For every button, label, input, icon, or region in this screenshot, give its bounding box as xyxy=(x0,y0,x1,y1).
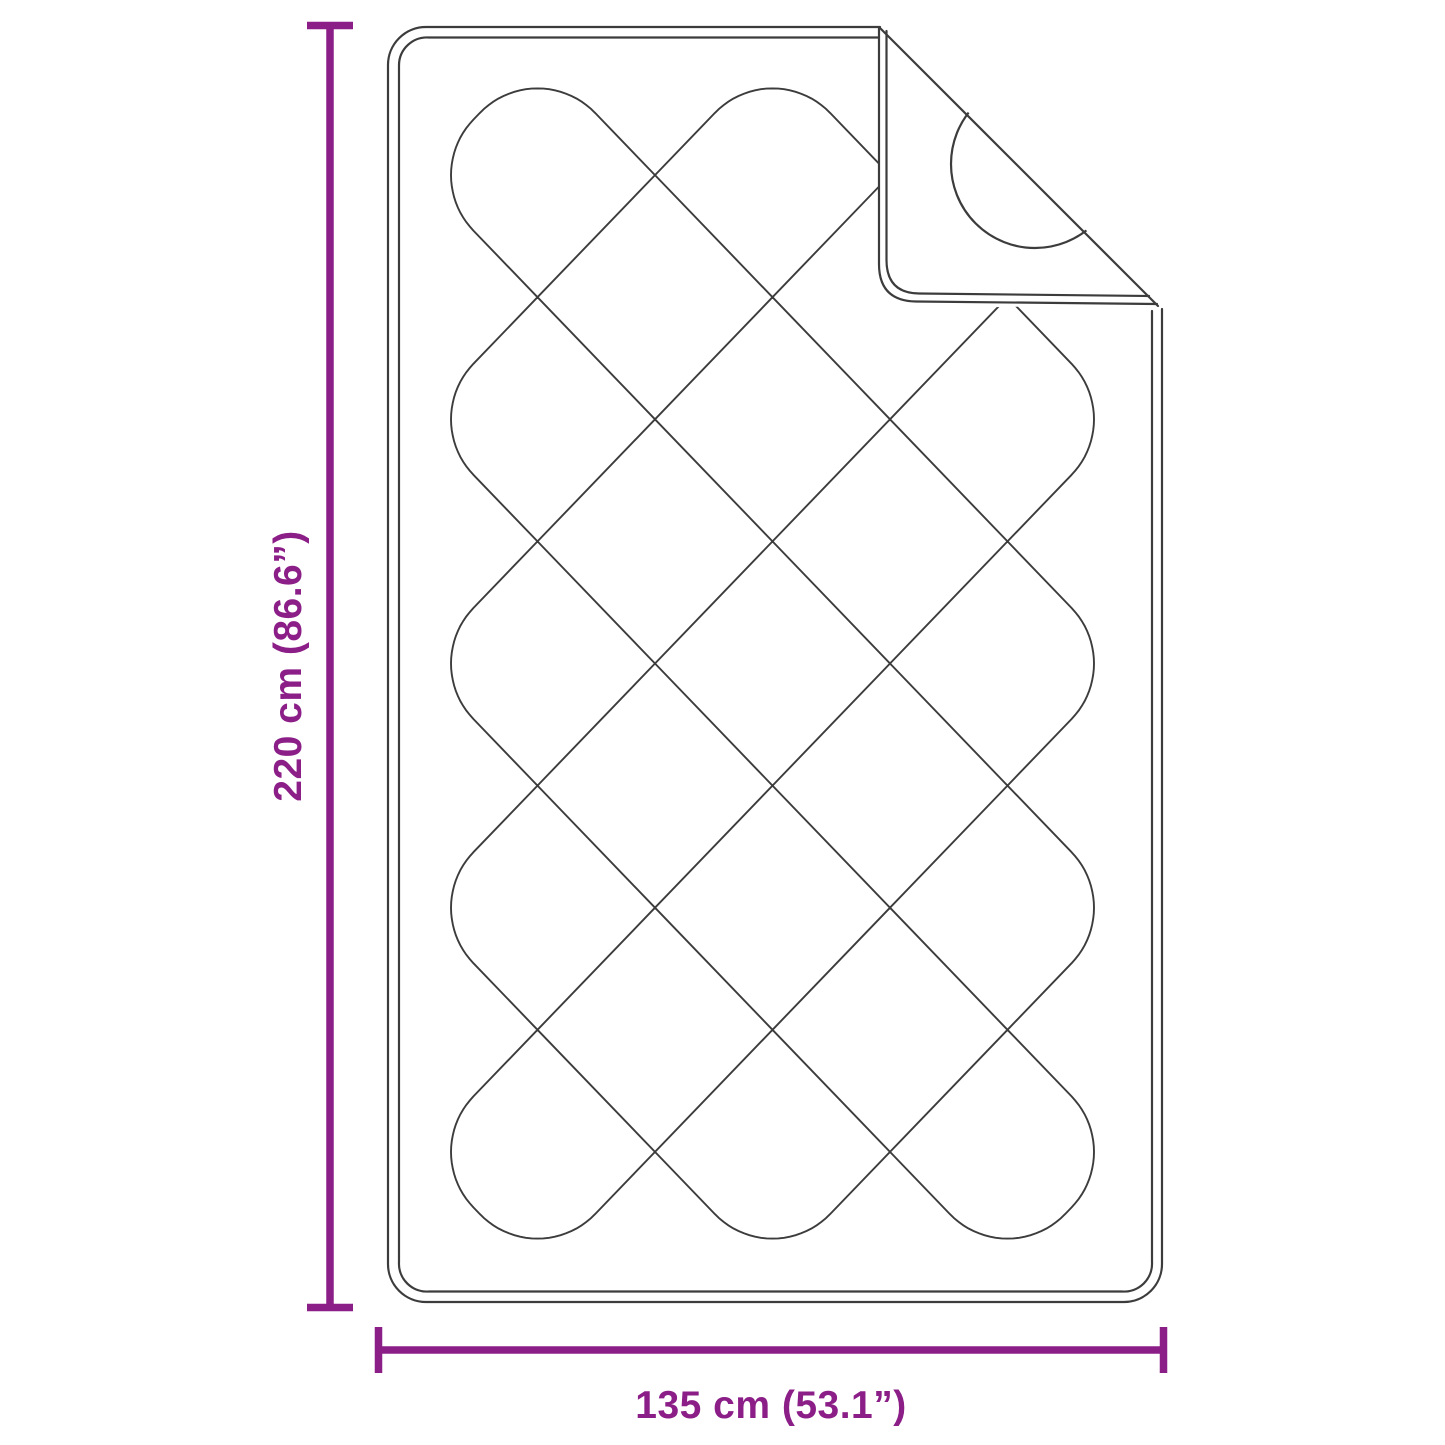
width-dimension-line xyxy=(378,1327,1164,1373)
product-dimension-diagram: 220 cm (86.6”) 135 cm (53.1”) xyxy=(0,0,1445,1445)
height-dimension-label: 220 cm (86.6”) xyxy=(267,530,311,802)
blanket-line-art xyxy=(0,0,1445,1445)
folded-corner xyxy=(879,27,1158,306)
height-dimension-line xyxy=(307,25,353,1308)
width-dimension-label: 135 cm (53.1”) xyxy=(635,1384,907,1428)
